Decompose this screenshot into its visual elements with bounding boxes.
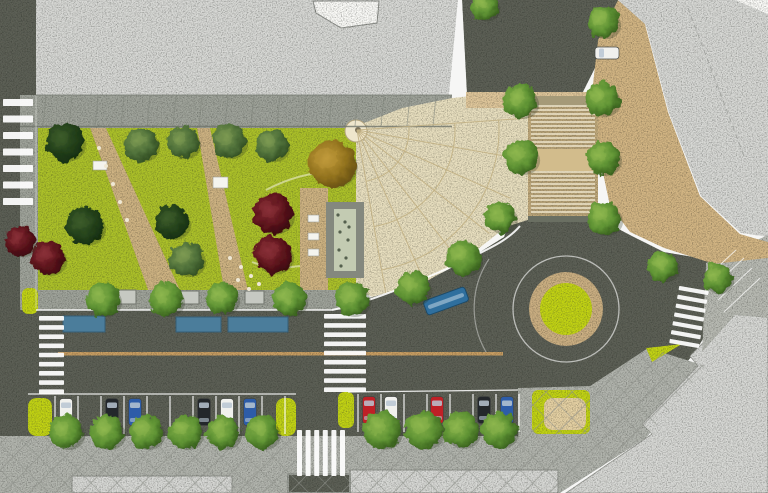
fountain-water	[334, 209, 356, 271]
car-windshield	[130, 403, 140, 409]
curb-island	[338, 392, 354, 428]
car-windshield	[61, 403, 71, 409]
tree-highlight	[259, 200, 277, 218]
car-windshield	[386, 401, 396, 407]
bus-shelter	[245, 291, 264, 304]
zebra-bar	[324, 360, 366, 365]
tree-highlight	[261, 134, 275, 148]
crosswalk-main-left	[39, 316, 64, 394]
paving-stone	[111, 182, 115, 186]
bench	[308, 233, 319, 240]
zebra-bar	[324, 351, 366, 356]
zebra-bar	[39, 334, 64, 339]
crosswalk-main-center	[324, 314, 366, 392]
site-plan	[0, 0, 768, 493]
bus-bay	[176, 317, 221, 332]
zebra-bar	[324, 323, 366, 328]
water-stone	[343, 220, 346, 223]
car-windshield	[107, 403, 117, 409]
tree-highlight	[450, 245, 466, 261]
zebra-bar	[324, 332, 366, 337]
tree-highlight	[592, 11, 606, 25]
zebra-bar	[39, 316, 64, 321]
zebra-bar	[340, 430, 345, 476]
paving-stone	[228, 256, 232, 260]
tree-highlight	[154, 287, 169, 302]
car-windshield	[364, 401, 374, 407]
water-stone	[344, 256, 347, 259]
paving-stone	[97, 146, 101, 150]
tree-highlight	[211, 420, 226, 435]
bus-bay	[63, 316, 105, 332]
bench	[308, 249, 319, 256]
water-stone	[336, 213, 339, 216]
tree-highlight	[72, 213, 89, 230]
tree-highlight	[173, 420, 188, 435]
water-stone	[346, 238, 349, 241]
tree-highlight	[134, 420, 149, 435]
zebra-bar	[297, 430, 302, 476]
car-windshield	[502, 401, 512, 407]
zebra-bar	[39, 344, 64, 349]
tree-highlight	[509, 145, 524, 160]
tree-highlight	[411, 417, 428, 434]
tree-highlight	[217, 129, 232, 144]
water-stone	[347, 225, 350, 228]
zebra-bar	[324, 387, 366, 392]
tree-highlight	[129, 132, 144, 147]
tree-highlight	[52, 129, 69, 146]
tree-highlight	[172, 131, 186, 145]
site-plan-page	[0, 0, 768, 493]
zebra-bar	[3, 116, 33, 123]
car-body	[595, 47, 619, 59]
tree-highlight	[250, 420, 265, 435]
tree-highlight	[340, 287, 355, 302]
paving-stone	[118, 200, 122, 204]
zebra-bar	[324, 342, 366, 347]
water-stone	[339, 264, 342, 267]
zebra-bar	[3, 149, 33, 156]
car-windshield	[199, 403, 209, 409]
tree-highlight	[54, 420, 69, 435]
zebra-bar	[39, 380, 64, 385]
paving-stone	[257, 282, 261, 286]
tree-highlight	[591, 146, 606, 161]
zebra-bar	[39, 325, 64, 330]
zebra-bar	[3, 165, 33, 172]
paving-stone	[247, 287, 251, 291]
zebra-bar	[306, 430, 311, 476]
water-stone	[338, 230, 341, 233]
tree-highlight	[448, 417, 464, 433]
tree-highlight	[401, 276, 416, 291]
curb-island	[28, 398, 52, 436]
tree-highlight	[10, 231, 24, 245]
car-rear-window	[199, 418, 209, 422]
tree-highlight	[260, 242, 277, 259]
tree-highlight	[369, 417, 386, 434]
zebra-bar	[314, 430, 319, 476]
tree-highlight	[592, 206, 607, 221]
zebra-bar	[39, 389, 64, 394]
bench	[213, 177, 228, 188]
tree-highlight	[653, 256, 667, 270]
tree-highlight	[36, 246, 51, 261]
tree-highlight	[486, 417, 502, 433]
tree-highlight	[211, 287, 225, 301]
car-windshield	[245, 403, 255, 409]
paving-stone	[236, 278, 240, 282]
zebra-bar	[3, 132, 33, 139]
tree-highlight	[95, 420, 110, 435]
zebra-bar	[324, 369, 366, 374]
zebra-bar	[39, 371, 64, 376]
zebra-bar	[3, 99, 33, 106]
zebra-bar	[39, 362, 64, 367]
tree-highlight	[91, 287, 106, 302]
zebra-bar	[324, 378, 366, 383]
tree-highlight	[590, 87, 605, 102]
roundabout-island	[540, 283, 592, 335]
paving-stone	[104, 164, 108, 168]
tree-highlight	[707, 268, 721, 282]
paving-stone	[249, 274, 253, 278]
zebra-bar	[331, 430, 336, 476]
tree-highlight	[175, 247, 190, 262]
paving-stone	[239, 265, 243, 269]
car-black	[198, 399, 211, 426]
road-median-line	[58, 352, 503, 356]
tree-highlight	[315, 147, 337, 169]
tree-highlight	[160, 210, 175, 225]
car-windshield	[479, 401, 489, 407]
zebra-bar	[39, 353, 64, 358]
tree-highlight	[277, 287, 292, 302]
bench	[308, 215, 319, 222]
tree-highlight	[508, 89, 523, 104]
zebra-bar	[323, 430, 328, 476]
car-windshield	[599, 49, 604, 58]
car-windshield	[432, 401, 442, 407]
zebra-bar	[3, 198, 33, 205]
car-windshield	[222, 403, 232, 409]
block-top-left	[36, 0, 458, 95]
water-stone	[337, 248, 340, 251]
tree-highlight	[489, 206, 503, 220]
car-white	[595, 47, 619, 59]
paving-stone	[125, 218, 129, 222]
zebra-bar	[3, 182, 33, 189]
bus-bay	[228, 317, 288, 332]
